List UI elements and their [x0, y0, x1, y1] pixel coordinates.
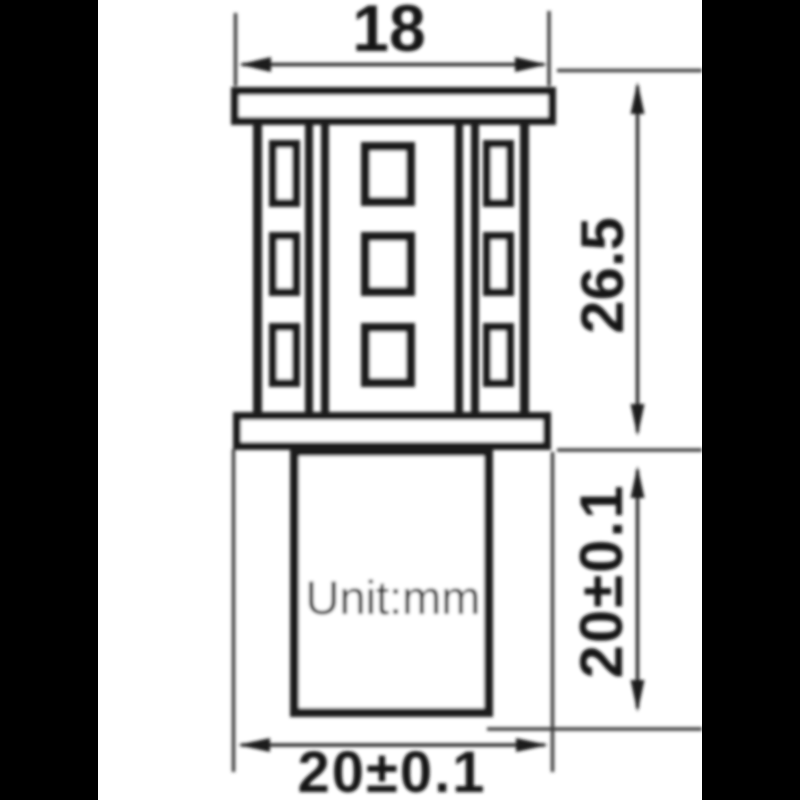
svg-text:Unit:mm: Unit:mm [306, 571, 481, 624]
svg-text:20±0.1: 20±0.1 [568, 483, 635, 678]
svg-text:26.5: 26.5 [569, 217, 636, 334]
svg-text:20±0.1: 20±0.1 [298, 740, 487, 800]
svg-text:18: 18 [352, 0, 425, 65]
